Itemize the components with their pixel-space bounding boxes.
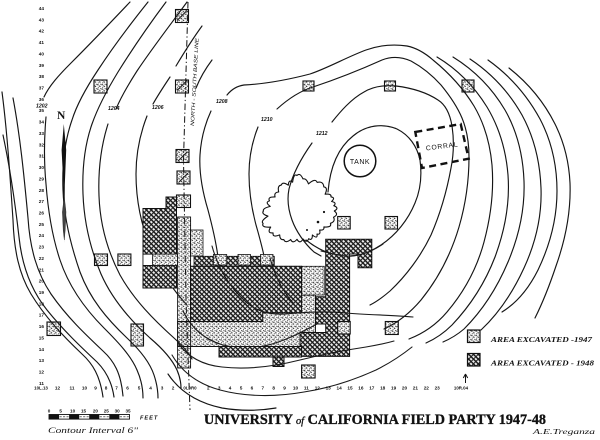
svg-text:13: 13 [326,386,332,391]
svg-text:15: 15 [81,409,87,414]
svg-text:6: 6 [126,386,129,391]
svg-text:2: 2 [207,386,210,391]
svg-text:5: 5 [138,386,141,391]
svg-text:11: 11 [304,386,309,391]
svg-text:18: 18 [39,301,45,306]
svg-text:41: 41 [39,40,45,45]
svg-text:22: 22 [39,256,45,261]
svg-text:9: 9 [283,386,286,391]
svg-text:28: 28 [39,188,45,193]
svg-text:33: 33 [39,131,45,136]
svg-text:1210: 1210 [261,117,273,123]
svg-text:25: 25 [39,222,45,227]
svg-text:26: 26 [39,211,45,216]
svg-text:4: 4 [149,386,152,391]
svg-text:12: 12 [39,370,45,375]
svg-text:42: 42 [39,29,45,34]
svg-text:13: 13 [39,358,45,363]
svg-text:43: 43 [39,17,45,22]
svg-text:19: 19 [39,290,45,295]
svg-text:14: 14 [336,386,342,391]
svg-text:1204: 1204 [108,106,120,112]
svg-text:10R.04: 10R.04 [454,386,469,391]
svg-text:14: 14 [39,347,45,352]
svg-text:31: 31 [39,154,45,159]
svg-text:2: 2 [172,386,175,391]
svg-text:0: 0 [48,409,51,414]
svg-text:23: 23 [435,386,441,391]
svg-text:38: 38 [39,74,45,79]
svg-text:4: 4 [229,386,232,391]
svg-text:12: 12 [55,386,61,391]
svg-text:1208: 1208 [216,99,228,105]
svg-text:32: 32 [39,142,45,147]
svg-text:5: 5 [59,409,62,414]
svg-text:FEET: FEET [140,416,158,422]
svg-text:39: 39 [39,63,45,68]
svg-text:8: 8 [272,386,275,391]
svg-text:12: 12 [315,386,321,391]
svg-text:10: 10 [82,386,88,391]
svg-text:16: 16 [39,324,45,329]
svg-text:1206: 1206 [152,105,164,111]
svg-text:34: 34 [39,120,45,125]
svg-text:8: 8 [105,386,108,391]
svg-text:36: 36 [39,97,45,102]
svg-text:Contour Interval 6": Contour Interval 6" [48,425,139,435]
svg-text:35: 35 [125,409,131,414]
svg-text:16: 16 [358,386,364,391]
svg-text:37: 37 [39,86,45,91]
svg-text:44: 44 [39,6,45,11]
svg-text:21: 21 [39,267,45,272]
svg-text:19: 19 [391,386,397,391]
svg-text:11: 11 [70,386,75,391]
svg-text:5: 5 [240,386,243,391]
svg-text:0L0R0: 0L0R0 [183,386,197,391]
svg-text:3: 3 [161,386,164,391]
svg-text:9: 9 [94,386,97,391]
svg-text:10: 10 [293,386,299,391]
svg-text:23: 23 [39,245,45,250]
svg-text:1212: 1212 [316,131,328,137]
svg-text:15: 15 [39,335,45,340]
svg-text:30: 30 [39,165,45,170]
svg-text:20: 20 [402,386,408,391]
svg-text:24: 24 [39,233,45,238]
svg-text:N: N [57,110,66,122]
svg-text:25: 25 [104,409,110,414]
svg-text:27: 27 [39,199,45,204]
svg-text:10L.13: 10L.13 [34,386,48,391]
svg-text:22: 22 [424,386,430,391]
svg-text:18: 18 [380,386,386,391]
svg-text:6: 6 [251,386,254,391]
svg-text:40: 40 [39,51,45,56]
svg-text:A.E.Treganza: A.E.Treganza [531,427,595,436]
svg-text:AREA EXCAVATED - 1948: AREA EXCAVATED - 1948 [490,360,595,368]
svg-text:20: 20 [39,279,45,284]
svg-text:7: 7 [115,386,118,391]
svg-text:TANK: TANK [350,159,370,166]
svg-text:21: 21 [413,386,419,391]
svg-text:7: 7 [261,386,264,391]
svg-text:29: 29 [39,176,45,181]
svg-text:20: 20 [93,409,99,414]
svg-text:15: 15 [347,386,353,391]
svg-text:17: 17 [369,386,375,391]
svg-text:30: 30 [115,409,121,414]
svg-text:1202: 1202 [36,104,48,110]
svg-text:17: 17 [39,313,45,318]
svg-text:10: 10 [70,409,76,414]
svg-text:3: 3 [218,386,221,391]
svg-text:UNIVERSITY of CALIFORNIA FIELD: UNIVERSITY of CALIFORNIA FIELD PARTY 194… [204,412,546,428]
svg-text:AREA EXCAVATED -1947: AREA EXCAVATED -1947 [490,336,593,344]
